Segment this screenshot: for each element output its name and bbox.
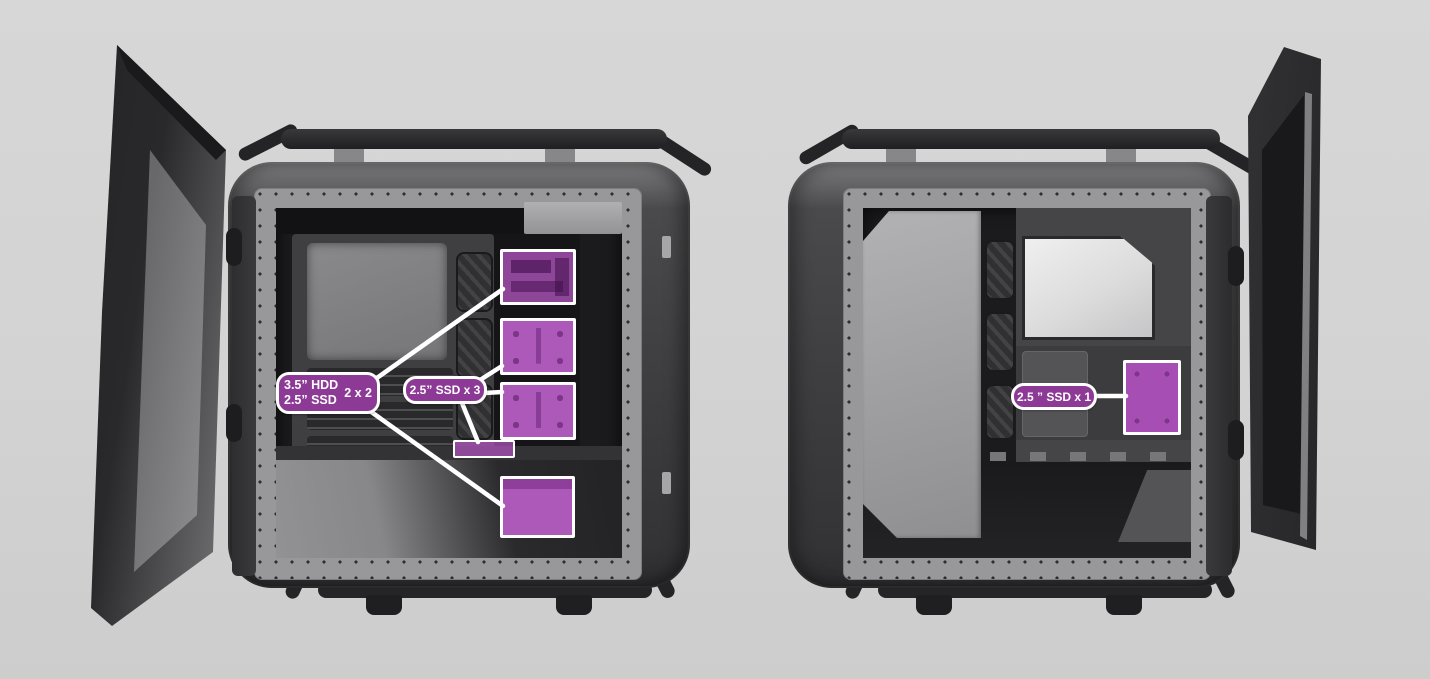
product-annotation-image: 3.5” HDD 2.5” SSD 2 x 2 2.5” SSD x 3 2.5… [0,0,1430,679]
callout-drive-types: 3.5” HDD 2.5” SSD [284,378,338,408]
callout-ssd-x3: 2.5” SSD x 3 [403,376,487,404]
callout-line2: 2.5” SSD [284,393,337,408]
callout-hdd-ssd-combo: 3.5” HDD 2.5” SSD 2 x 2 [276,372,380,414]
callout-line-hdd-cage [374,289,503,380]
callout-text: 2.5 ” SSD x 1 [1017,390,1091,404]
callout-text: 2.5” SSD x 3 [410,383,481,397]
callout-line1: 3.5” HDD [284,378,338,393]
callout-lines [0,0,1430,679]
callout-ssd-x1: 2.5 ” SSD x 1 [1011,383,1097,410]
callout-line-ssd-slim [462,403,478,442]
callout-line-ssd-upper [480,366,502,380]
callout-count: 2 x 2 [344,386,372,400]
callout-line-shroud-mount [370,411,503,506]
